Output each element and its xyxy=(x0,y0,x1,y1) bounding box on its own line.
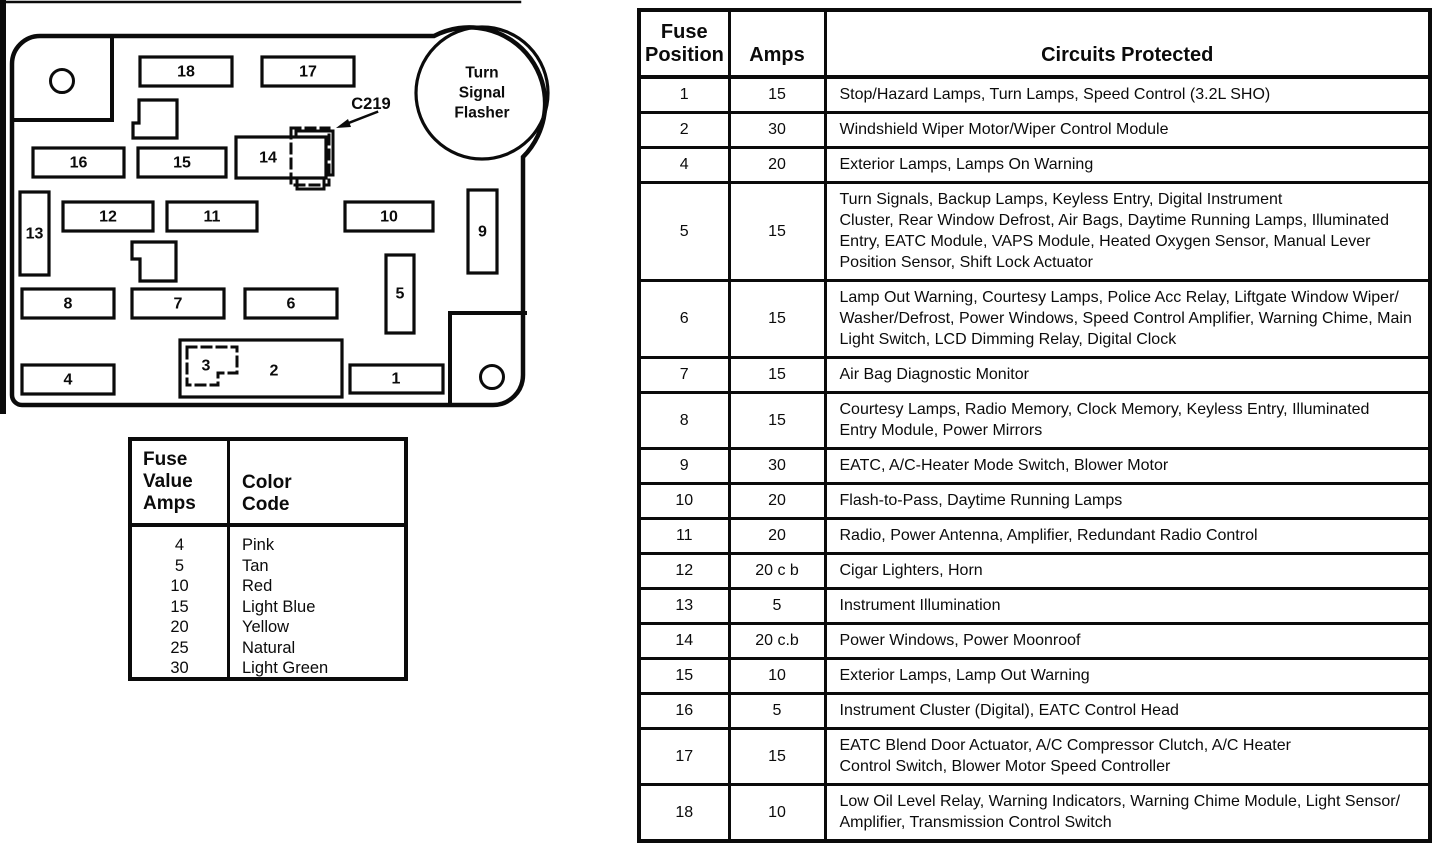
fuse-position-cell: 11 xyxy=(639,519,729,554)
legend-row: 25 Natural xyxy=(132,638,404,659)
mounting-hole-icon-bottom-right xyxy=(481,366,504,389)
circuits-cell: Flash-to-Pass, Daytime Running Lamps xyxy=(825,484,1430,519)
mounting-hole-icon-top-left xyxy=(51,70,74,93)
table-row: 1420 c.bPower Windows, Power Moonroof xyxy=(639,624,1430,659)
legend-amps-value: 10 xyxy=(132,576,227,597)
legend-header-fuse-value-amps: Fuse Value Amps xyxy=(132,441,227,523)
fuse-14 xyxy=(236,137,326,178)
amps-cell: 20 c.b xyxy=(729,624,825,659)
table-row: 1810Low Oil Level Relay, Warning Indicat… xyxy=(639,785,1430,842)
amps-cell: 15 xyxy=(729,729,825,785)
circuits-cell: Radio, Power Antenna, Amplifier, Redunda… xyxy=(825,519,1430,554)
fuse-18-label: 18 xyxy=(177,64,195,81)
legend-header-row: Fuse Value Amps Color Code xyxy=(132,441,404,527)
c219-connector-label: C219 xyxy=(351,95,390,113)
legend-color-name: Yellow xyxy=(227,617,404,638)
fuse-13-label: 13 xyxy=(26,226,44,243)
fuse-position-cell: 17 xyxy=(639,729,729,785)
fuse-10-label: 10 xyxy=(380,209,398,226)
legend-amps-value: 20 xyxy=(132,617,227,638)
table-row: 1220 c bCigar Lighters, Horn xyxy=(639,554,1430,589)
circuits-cell: Exterior Lamps, Lamp Out Warning xyxy=(825,659,1430,694)
circuits-cell: Exterior Lamps, Lamps On Warning xyxy=(825,148,1430,183)
fuse-position-cell: 16 xyxy=(639,694,729,729)
legend-color-name: Light Green xyxy=(227,658,404,679)
legend-row: 15 Light Blue xyxy=(132,597,404,618)
table-row: 515Turn Signals, Backup Lamps, Keyless E… xyxy=(639,183,1430,281)
fuse-position-cell: 5 xyxy=(639,183,729,281)
fuse-position-cell: 14 xyxy=(639,624,729,659)
fuse-position-cell: 18 xyxy=(639,785,729,842)
legend-body: 4 Pink 5 Tan 10 Red 15 Light Blue 20 Yel… xyxy=(132,527,404,679)
table-row: 230Windshield Wiper Motor/Wiper Control … xyxy=(639,113,1430,148)
legend-row: 10 Red xyxy=(132,576,404,597)
amps-cell: 10 xyxy=(729,659,825,694)
table-header-row: Fuse Position Amps Circuits Protected xyxy=(639,10,1430,77)
legend-header-color-code: Color Code xyxy=(227,441,404,523)
header-amps: Amps xyxy=(729,10,825,77)
fuse-position-cell: 7 xyxy=(639,358,729,393)
legend-amps-value: 15 xyxy=(132,597,227,618)
legend-color-name: Light Blue xyxy=(227,597,404,618)
amps-cell: 15 xyxy=(729,77,825,113)
fuse-8-label: 8 xyxy=(64,296,73,313)
legend-row: 20 Yellow xyxy=(132,617,404,638)
amps-cell: 15 xyxy=(729,281,825,358)
legend-amps-value: 5 xyxy=(132,556,227,577)
fuse-1-label: 1 xyxy=(392,371,401,388)
fuse-position-cell: 13 xyxy=(639,589,729,624)
table-row: 165Instrument Cluster (Digital), EATC Co… xyxy=(639,694,1430,729)
circuits-cell: EATC Blend Door Actuator, A/C Compressor… xyxy=(825,729,1430,785)
table-row: 135Instrument Illumination xyxy=(639,589,1430,624)
fuse-14-label: 14 xyxy=(259,150,277,167)
amps-cell: 10 xyxy=(729,785,825,842)
legend-column-divider xyxy=(227,441,230,677)
fuse-position-cell: 4 xyxy=(639,148,729,183)
fuse-color-code-legend: Fuse Value Amps Color Code 4 Pink 5 Tan … xyxy=(128,437,408,681)
table-row: 1020Flash-to-Pass, Daytime Running Lamps xyxy=(639,484,1430,519)
table-row: 715Air Bag Diagnostic Monitor xyxy=(639,358,1430,393)
relay-component-middle xyxy=(132,242,176,281)
circuits-cell: Instrument Illumination xyxy=(825,589,1430,624)
table-row: 1715EATC Blend Door Actuator, A/C Compre… xyxy=(639,729,1430,785)
fuse-4-label: 4 xyxy=(64,372,73,389)
circuits-cell: Lamp Out Warning, Courtesy Lamps, Police… xyxy=(825,281,1430,358)
amps-cell: 20 xyxy=(729,148,825,183)
amps-cell: 15 xyxy=(729,358,825,393)
amps-cell: 20 xyxy=(729,484,825,519)
table-row: 420Exterior Lamps, Lamps On Warning xyxy=(639,148,1430,183)
amps-cell: 15 xyxy=(729,183,825,281)
circuits-cell: EATC, A/C-Heater Mode Switch, Blower Mot… xyxy=(825,449,1430,484)
fuse-position-cell: 1 xyxy=(639,77,729,113)
fuse-11-label: 11 xyxy=(204,209,221,226)
fuse-16-label: 16 xyxy=(70,155,88,172)
circuits-cell: Courtesy Lamps, Radio Memory, Clock Memo… xyxy=(825,393,1430,449)
legend-color-name: Tan xyxy=(227,556,404,577)
circuits-cell: Stop/Hazard Lamps, Turn Lamps, Speed Con… xyxy=(825,77,1430,113)
amps-cell: 20 c b xyxy=(729,554,825,589)
fuse-15-label: 15 xyxy=(173,155,191,172)
circuits-cell: Low Oil Level Relay, Warning Indicators,… xyxy=(825,785,1430,842)
amps-cell: 5 xyxy=(729,589,825,624)
fuse-position-cell: 15 xyxy=(639,659,729,694)
flasher-label-line3: Flasher xyxy=(454,105,509,122)
fuse-position-cell: 6 xyxy=(639,281,729,358)
circuits-cell: Cigar Lighters, Horn xyxy=(825,554,1430,589)
scanned-fuse-diagram-page: 18 17 16 15 14 13 12 11 10 9 8 7 6 5 4 3… xyxy=(0,0,1440,848)
header-circuits-protected: Circuits Protected xyxy=(825,10,1430,77)
legend-color-name: Pink xyxy=(227,535,404,556)
c219-arrow-head-icon xyxy=(336,119,351,128)
circuits-cell: Air Bag Diagnostic Monitor xyxy=(825,358,1430,393)
fuse-box-diagram: 18 17 16 15 14 13 12 11 10 9 8 7 6 5 4 3… xyxy=(0,0,570,420)
legend-amps-value: 30 xyxy=(132,658,227,679)
fuse-position-cell: 12 xyxy=(639,554,729,589)
circuits-cell: Power Windows, Power Moonroof xyxy=(825,624,1430,659)
fuse-12-label: 12 xyxy=(99,209,117,226)
fuse-9-label: 9 xyxy=(478,224,487,241)
amps-cell: 5 xyxy=(729,694,825,729)
relay-component-upper xyxy=(133,100,177,138)
top-left-compartment xyxy=(12,36,112,120)
amps-cell: 30 xyxy=(729,449,825,484)
legend-row: 5 Tan xyxy=(132,556,404,577)
flasher-label-line1: Turn xyxy=(465,65,498,82)
fuse-position-cell: 8 xyxy=(639,393,729,449)
header-fuse-position: Fuse Position xyxy=(639,10,729,77)
fuse-position-cell: 9 xyxy=(639,449,729,484)
table-row: 115Stop/Hazard Lamps, Turn Lamps, Speed … xyxy=(639,77,1430,113)
bottom-right-compartment xyxy=(450,313,525,405)
fuse-5-label: 5 xyxy=(396,286,405,303)
legend-color-name: Red xyxy=(227,576,404,597)
flasher-label-line2: Signal xyxy=(459,85,506,102)
legend-row: 4 Pink xyxy=(132,535,404,556)
table-row: 1510Exterior Lamps, Lamp Out Warning xyxy=(639,659,1430,694)
table-row: 930EATC, A/C-Heater Mode Switch, Blower … xyxy=(639,449,1430,484)
legend-row: 30 Light Green xyxy=(132,658,404,679)
table-row: 815Courtesy Lamps, Radio Memory, Clock M… xyxy=(639,393,1430,449)
c219-arrow-line xyxy=(346,112,377,124)
table-row: 615Lamp Out Warning, Courtesy Lamps, Pol… xyxy=(639,281,1430,358)
fuse-17-label: 17 xyxy=(299,64,317,81)
amps-cell: 15 xyxy=(729,393,825,449)
fuse-circuits-table: Fuse Position Amps Circuits Protected 11… xyxy=(637,8,1432,843)
table-row: 1120Radio, Power Antenna, Amplifier, Red… xyxy=(639,519,1430,554)
fuse-6-label: 6 xyxy=(287,296,296,313)
circuits-cell: Turn Signals, Backup Lamps, Keyless Entr… xyxy=(825,183,1430,281)
circuits-cell: Windshield Wiper Motor/Wiper Control Mod… xyxy=(825,113,1430,148)
fuse-position-cell: 10 xyxy=(639,484,729,519)
fuse-2-label: 2 xyxy=(270,363,279,380)
fuse-3-label: 3 xyxy=(202,358,211,375)
fuse-7-label: 7 xyxy=(174,296,183,313)
legend-amps-value: 4 xyxy=(132,535,227,556)
legend-color-name: Natural xyxy=(227,638,404,659)
fuse-position-cell: 2 xyxy=(639,113,729,148)
amps-cell: 30 xyxy=(729,113,825,148)
circuits-cell: Instrument Cluster (Digital), EATC Contr… xyxy=(825,694,1430,729)
legend-amps-value: 25 xyxy=(132,638,227,659)
amps-cell: 20 xyxy=(729,519,825,554)
